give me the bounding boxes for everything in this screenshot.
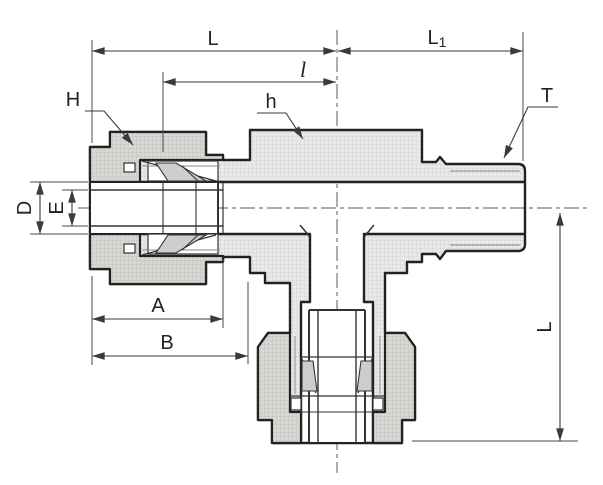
label-E: E: [46, 201, 68, 214]
dimension-E: E: [46, 190, 72, 226]
fitting-technical-drawing: L l L1 D E A B L: [0, 0, 603, 485]
left-upper-ferrule-pocket: [124, 163, 135, 172]
label-A: A: [151, 295, 165, 317]
label-H: H: [66, 89, 80, 111]
dimension-L1: L1: [338, 27, 523, 51]
label-L1-sub: 1: [439, 34, 447, 50]
branch-left-ferrule-pocket: [291, 398, 301, 410]
label-L: L: [207, 28, 218, 50]
leader-line-T: [504, 107, 558, 158]
branch-right-ferrule-pocket: [373, 398, 383, 410]
dimension-D: D: [14, 182, 40, 234]
label-h: h: [265, 91, 276, 113]
dimension-L-side: L: [534, 213, 560, 441]
label-L-side: L: [534, 321, 556, 332]
dimension-A: A: [92, 295, 223, 319]
label-B: B: [160, 332, 173, 354]
leader-T: T: [504, 85, 558, 158]
dimension-B: B: [92, 332, 248, 356]
label-L1-base: L: [428, 27, 439, 49]
label-L1: L1: [428, 27, 447, 50]
dimension-L: L: [92, 28, 336, 51]
label-l: l: [300, 57, 306, 82]
dimension-l: l: [163, 57, 336, 82]
label-D: D: [14, 201, 36, 215]
label-T: T: [541, 85, 553, 107]
left-lower-ferrule-pocket: [124, 244, 135, 253]
drawing-canvas: L l L1 D E A B L: [0, 0, 603, 485]
